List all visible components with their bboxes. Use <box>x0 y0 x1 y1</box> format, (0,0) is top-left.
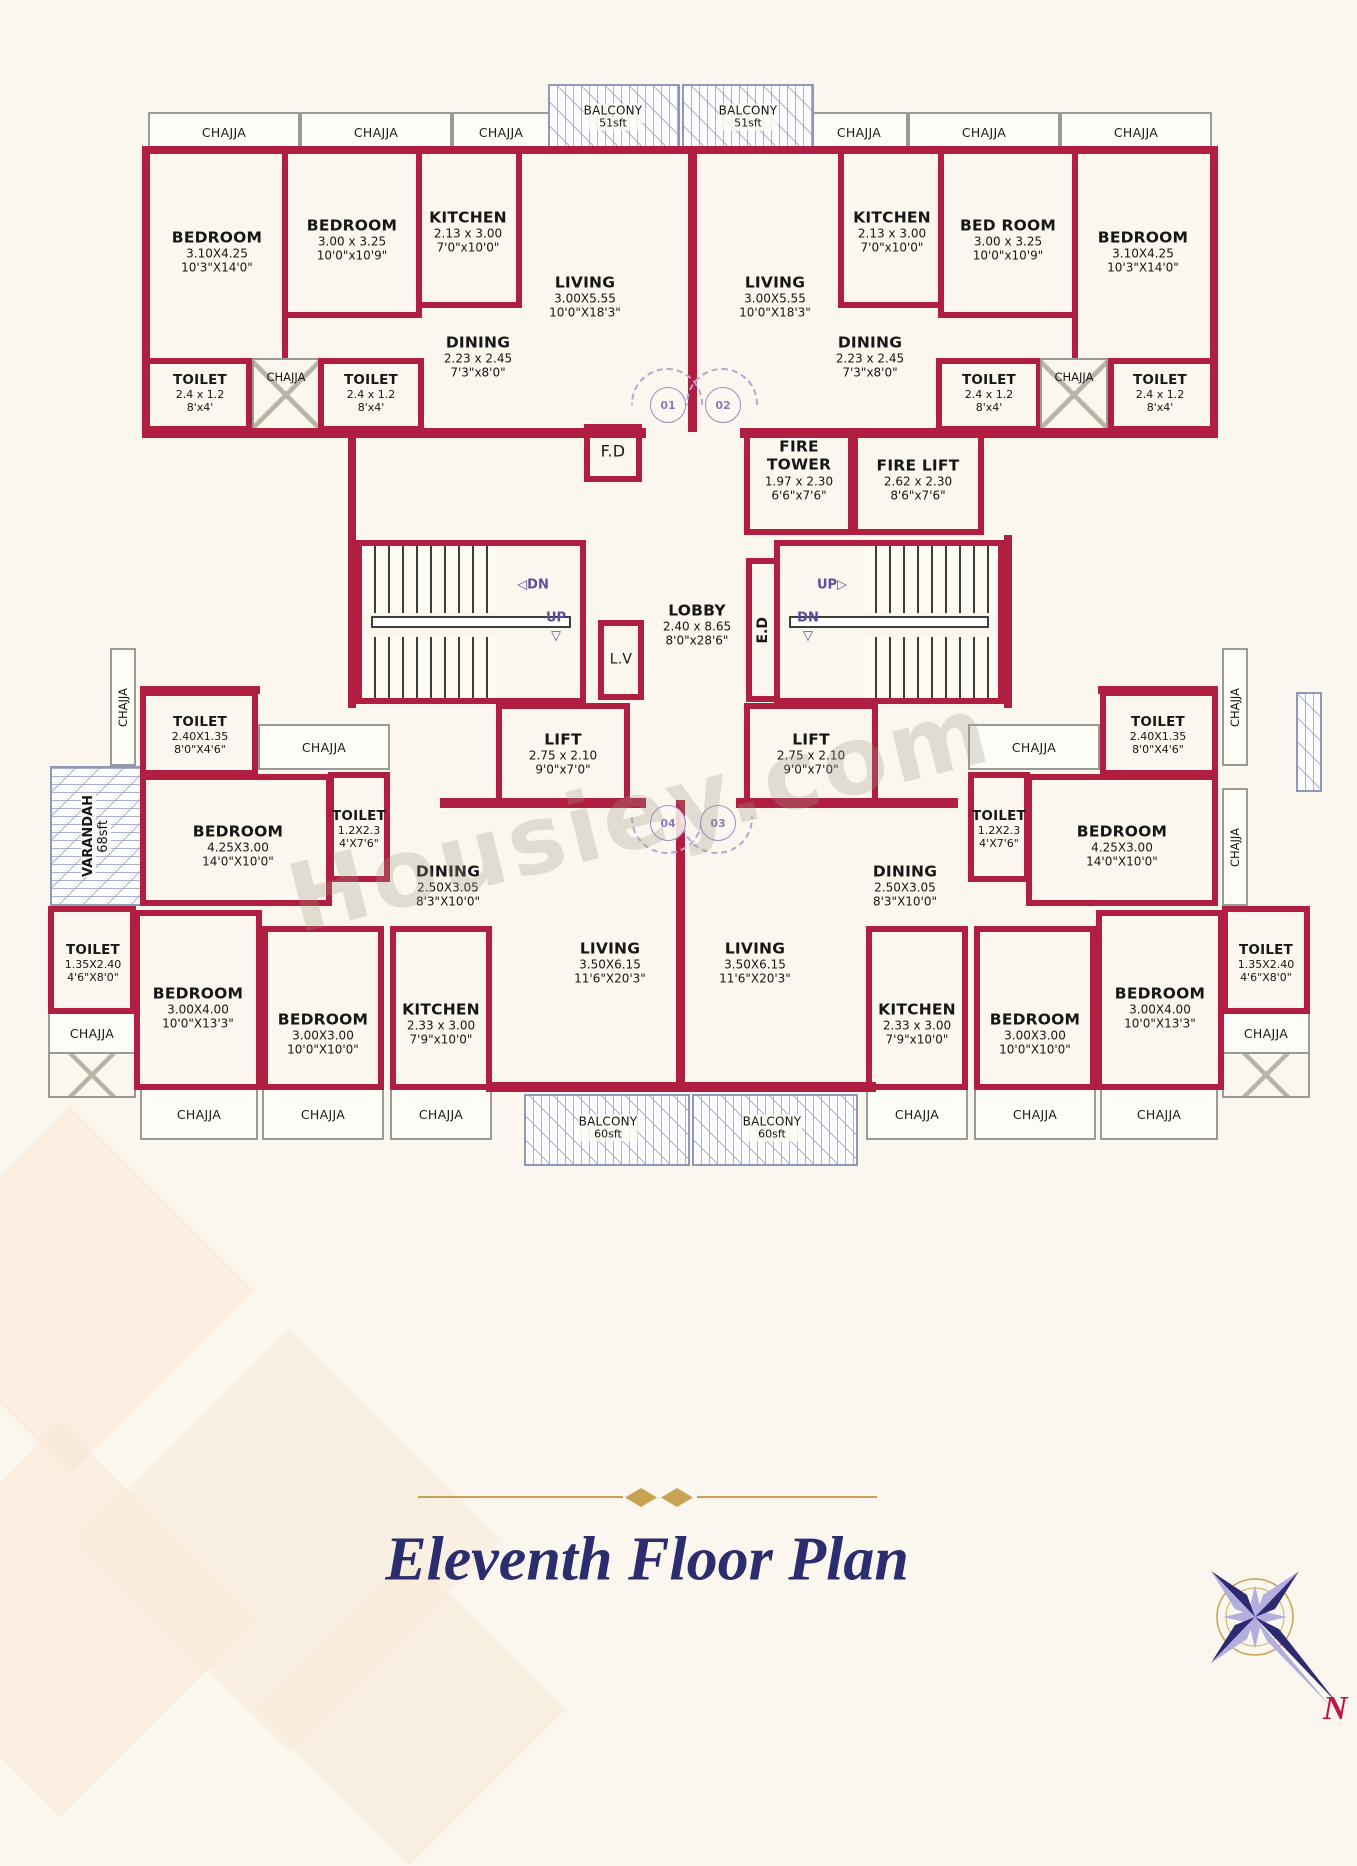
fd-label: F.D <box>601 443 626 462</box>
compass-rose: N <box>1185 1545 1355 1734</box>
chajja-strip: CHAJJA <box>974 1088 1096 1140</box>
stairs-dn-label: ◁DN <box>517 578 549 593</box>
room-label-bedroom: BEDROOM4.25X3.0014'0"X10'0" <box>193 823 283 870</box>
room-label-fire-tower: FIRE TOWER1.97 x 2.306'6"x7'6" <box>756 438 842 503</box>
varandah-label: VARANDAH68sft <box>58 776 134 896</box>
chajja-strip: CHAJJA <box>258 724 390 770</box>
chajja-strip: CHAJJA <box>866 1088 968 1140</box>
chajja-label: CHAJJA <box>267 371 306 385</box>
title-divider-line <box>697 1496 877 1498</box>
wall <box>1210 146 1218 438</box>
balcony-label: BALCONY51sft <box>584 103 643 130</box>
chajja-label: CHAJJA <box>1114 125 1158 140</box>
room-label-toilet: TOILET2.4 x 1.28'x4' <box>1133 373 1187 415</box>
room-label-toilet: TOILET2.4 x 1.28'x4' <box>344 373 398 415</box>
chajja-hatch <box>1296 692 1322 792</box>
wall <box>740 428 1218 438</box>
room-label-bedroom: BED ROOM3.00 x 3.2510'0"x10'9" <box>960 217 1056 264</box>
room-label-bedroom: BEDROOM3.10X4.2510'3"X14'0" <box>172 229 262 276</box>
chajja-label: CHAJJA <box>202 125 246 140</box>
chajja-duct <box>1040 358 1108 432</box>
room-label-kitchen: KITCHEN2.33 x 3.007'9"x10'0" <box>402 1001 480 1048</box>
room-label-lobby: LOBBY2.40 x 8.658'0"x28'6" <box>663 602 731 649</box>
chajja-strip: CHAJJA <box>1100 1088 1218 1140</box>
chajja-strip: CHAJJA <box>390 1088 492 1140</box>
chajja-label: CHAJJA <box>354 125 398 140</box>
room-label-living: LIVING3.50X6.1511'6"X20'3" <box>574 940 646 987</box>
room-label-fire-lift: FIRE LIFT2.62 x 2.308'6"x7'6" <box>877 457 960 504</box>
room-label-toilet: TOILET2.4 x 1.28'x4' <box>962 373 1016 415</box>
wall <box>1098 686 1218 694</box>
room-label-toilet: TOILET1.35X2.404'6"X8'0" <box>65 943 122 985</box>
entrance-door-01: 01 <box>650 387 686 423</box>
room-label-toilet: TOILET2.40X1.358'0"X4'6" <box>1130 715 1187 757</box>
room-label-bedroom: BEDROOM3.00X3.0010'0"X10'0" <box>278 1011 368 1058</box>
chajja-vertical: CHAJJA <box>1222 788 1248 906</box>
room-label-toilet: TOILET2.40X1.358'0"X4'6" <box>172 715 229 757</box>
room-label-toilet: TOILET1.35X2.404'6"X8'0" <box>1238 943 1295 985</box>
wall <box>142 146 150 438</box>
room-label-living: LIVING3.00X5.5510'0"X18'3" <box>549 274 621 321</box>
chajja-duct <box>48 1052 136 1098</box>
chajja-vertical: CHAJJA <box>110 648 136 766</box>
room-label-lift: LIFT2.75 x 2.109'0"x7'0" <box>529 731 597 778</box>
chajja-strip: CHAJJA <box>1222 1012 1310 1054</box>
page-title: Eleventh Floor Plan <box>385 1525 909 1596</box>
stair-flight <box>863 546 998 613</box>
room-label-bedroom: BEDROOM3.00 x 3.2510'0"x10'9" <box>307 217 397 264</box>
wall <box>142 146 1218 154</box>
room-label-kitchen: KITCHEN2.13 x 3.007'0"x10'0" <box>429 209 507 256</box>
title-diamond-icon <box>661 1488 693 1507</box>
room-label-toilet: TOILET2.4 x 1.28'x4' <box>173 373 227 415</box>
balcony-label: BALCONY51sft <box>719 103 778 130</box>
chajja-label: CHAJJA <box>837 125 881 140</box>
stair-flight <box>362 637 497 698</box>
room-label-living: LIVING3.00X5.5510'0"X18'3" <box>739 274 811 321</box>
lv-label: L.V <box>610 652 632 669</box>
chajja-label: CHAJJA <box>479 125 523 140</box>
chajja-label: CHAJJA <box>962 125 1006 140</box>
stair-landing <box>371 616 572 628</box>
wall <box>140 686 260 694</box>
room-label-dining: DINING2.23 x 2.457'3"x8'0" <box>836 334 904 381</box>
wall <box>486 1082 876 1092</box>
wall <box>1004 535 1012 708</box>
room-label-bedroom: BEDROOM3.00X4.0010'0"X13'3" <box>153 985 243 1032</box>
room-label-dining: DINING2.50X3.058'3"X10'0" <box>873 863 937 910</box>
arrow-down-icon: ▽ <box>551 629 561 644</box>
title-diamond-icon <box>625 1488 657 1507</box>
room-label-kitchen: KITCHEN2.33 x 3.007'9"x10'0" <box>878 1001 956 1048</box>
entrance-door-02: 02 <box>705 387 741 423</box>
arrow-left-icon: ◁ <box>517 578 527 593</box>
room-label-toilet: TOILET1.2X2.34'X7'6" <box>972 809 1026 851</box>
stairs-dn-label: DN <box>797 611 819 626</box>
chajja-strip: CHAJJA <box>140 1088 258 1140</box>
chajja-duct <box>252 358 320 432</box>
chajja-duct <box>1222 1052 1310 1098</box>
chajja-strip: CHAJJA <box>262 1088 384 1140</box>
room-label-bedroom: BEDROOM4.25X3.0014'0"X10'0" <box>1077 823 1167 870</box>
stairs-up-label: UP <box>546 611 566 626</box>
chajja-label: CHAJJA <box>1055 371 1094 385</box>
room-label-bedroom: BEDROOM3.00X3.0010'0"X10'0" <box>990 1011 1080 1058</box>
room-bedroom <box>974 926 1096 1090</box>
wall <box>142 428 646 438</box>
stairs-up-label: UP▷ <box>817 578 847 593</box>
room-label-kitchen: KITCHEN2.13 x 3.007'0"x10'0" <box>853 209 931 256</box>
north-label: N <box>1322 1690 1349 1727</box>
chajja-vertical: CHAJJA <box>1222 648 1248 766</box>
arrow-down-icon: ▽ <box>803 629 813 644</box>
balcony-label: BALCONY60sft <box>579 1114 638 1141</box>
title-divider-line <box>418 1496 623 1498</box>
stair-flight <box>362 546 497 613</box>
room-label-dining: DINING2.23 x 2.457'3"x8'0" <box>444 334 512 381</box>
wall <box>348 428 356 708</box>
balcony-label: BALCONY60sft <box>743 1114 802 1141</box>
compass-icon: N <box>1185 1545 1355 1730</box>
chajja-strip: CHAJJA <box>48 1012 136 1054</box>
ed-label: E.D <box>748 578 778 682</box>
room-label-bedroom: BEDROOM3.10X4.2510'3"X14'0" <box>1098 229 1188 276</box>
room-label-living: LIVING3.50X6.1511'6"X20'3" <box>719 940 791 987</box>
arrow-right-icon: ▷ <box>837 578 847 593</box>
room-label-bedroom: BEDROOM3.00X4.0010'0"X13'3" <box>1115 985 1205 1032</box>
